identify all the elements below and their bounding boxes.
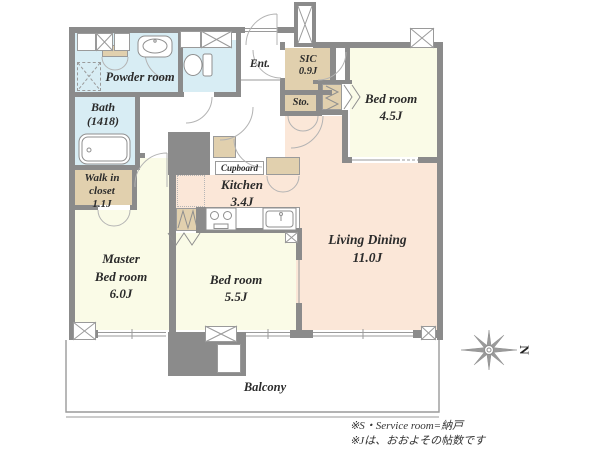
balcony-outline: [66, 340, 439, 417]
living-dining-label: Living Dining11.0J: [305, 231, 430, 266]
stove-icon: [206, 208, 236, 230]
footnote-jou: ※Jは、おおよその帖数です: [350, 434, 590, 449]
compass-north-label: N: [517, 345, 532, 355]
bathtub-icon: [79, 134, 130, 164]
balcony-label: Balcony: [215, 380, 315, 395]
storage-label: Sto.: [285, 97, 317, 109]
hanger-pipe-icon: [326, 86, 338, 110]
walk-in-closet-label: Walk in closet 1.1J: [71, 172, 133, 211]
powder-room-label: Powder room: [85, 70, 195, 85]
bath-label: Bath(1418): [70, 100, 136, 128]
kitchen-label: Kitchen3.4J: [196, 177, 288, 211]
window-lines: [98, 329, 413, 339]
cupboard-label: Cupboard: [215, 163, 264, 174]
bifold-door-icon: [168, 233, 200, 245]
sink-icon: [138, 36, 172, 57]
footnotes: ※S・Service room=納戸 ※Jは、おおよその帖数です: [350, 419, 590, 448]
footnote-service-room: ※S・Service room=納戸: [350, 419, 590, 434]
hanger-pipe-icon: [178, 211, 197, 228]
entrance-label: Ent.: [238, 58, 282, 72]
sic-label: SIC0.9J: [286, 54, 330, 79]
kitchen-sink-icon: [263, 208, 296, 230]
bedroom-55-label: Bed room5.5J: [186, 272, 286, 306]
floor-plan: N Powder room Bath(1418) Walk in closet …: [0, 0, 600, 450]
bedroom-45-label: Bed room4.5J: [345, 91, 437, 125]
master-bedroom-label: Master Bed room 6.0J: [70, 250, 172, 303]
compass-icon: N: [461, 330, 532, 370]
